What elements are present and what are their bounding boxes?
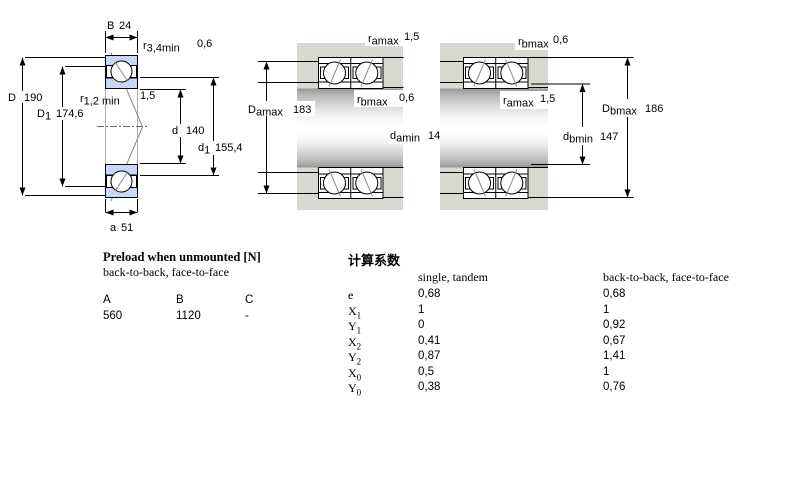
factors-row: Y1 0 0,92	[348, 319, 768, 335]
dim-B: B 24	[106, 20, 138, 53]
factor-value-btb: 1	[603, 366, 763, 378]
dim-value-ramax-right: 1,5	[540, 93, 555, 105]
factor-value-single: 0,41	[418, 335, 603, 347]
dim-label-a: a	[110, 222, 117, 234]
dim-label-ramax-mid: ramax	[368, 33, 399, 48]
dim-label-ramax-right: ramax	[503, 95, 534, 110]
factors-title: 计算系数	[348, 250, 400, 269]
dim-value-ramax-mid: 1,5	[404, 31, 419, 43]
dim-ramax-right: ramax 1,5	[500, 91, 560, 110]
dim-value-r34: 0,6	[197, 38, 212, 50]
dim-value-B: 24	[119, 20, 131, 32]
factors-row: Y0 0,38 0,76	[348, 381, 768, 397]
dim-a: a 51	[106, 199, 138, 234]
factor-value-single: 0,68	[418, 288, 603, 300]
preload-col-A: A	[103, 294, 176, 306]
bearing-section-top	[106, 56, 138, 89]
dim-label-d: d	[172, 125, 178, 137]
factors-col2-header: back-to-back, face-to-face	[603, 270, 729, 285]
factor-label: Y2	[348, 350, 418, 365]
factor-value-btb: 0,76	[603, 381, 763, 393]
dim-value-a: 51	[121, 222, 133, 234]
dim-D1: D1 174,6	[35, 67, 105, 187]
dim-value-D: 190	[24, 92, 42, 104]
factor-value-btb: 1	[603, 304, 763, 316]
dim-value-r12: 1,5	[140, 90, 155, 102]
dim-label-B: B	[107, 20, 114, 32]
dim-label-rbmax-mid: rbmax	[357, 94, 388, 109]
dim-r12: r1,2 min 1,5	[80, 90, 155, 108]
factor-value-btb: 0,92	[603, 319, 763, 331]
dim-label-D: D	[8, 92, 16, 104]
bearing-pair-top	[464, 58, 529, 89]
bearing-pair-bottom	[319, 168, 384, 199]
factor-value-single: 1	[418, 304, 603, 316]
bearing-pair-bottom	[464, 168, 529, 199]
dim-label-Damax: Damax	[248, 104, 283, 119]
preload-value-row: 560 1120 -	[103, 310, 305, 322]
dim-D: D 190	[6, 58, 105, 196]
ball	[501, 172, 523, 194]
factor-label: X0	[348, 366, 418, 381]
factors-row: e 0,68 0,68	[348, 288, 768, 304]
single-bearing-diagram: B 24 D 190 D1 174,6	[6, 20, 250, 234]
preload-table: A B C 560 1120 -	[103, 294, 305, 322]
dim-value-d1: 155,4	[215, 142, 243, 154]
factors-row: X0 0,5 1	[348, 366, 768, 382]
factor-label: e	[348, 288, 418, 303]
dim-value-Dbmax: 186	[645, 103, 663, 115]
mounted-pair-diagram-b: Dbmax 186 dbmin 147 rbmax 0,6 ramax	[440, 32, 666, 210]
dim-ramax-mid: ramax 1,5	[365, 29, 422, 48]
factors-table: e 0,68 0,68 X1 1 1 Y1 0 0,92 X2 0,41 0,6…	[348, 288, 768, 397]
bearing-datasheet-page: B 24 D 190 D1 174,6	[0, 0, 800, 500]
factor-label: Y1	[348, 319, 418, 334]
dim-label-rbmax-right: rbmax	[518, 36, 549, 51]
dim-r34: r3,4min 0,6	[143, 38, 212, 55]
bearing-technical-drawing: B 24 D 190 D1 174,6	[0, 0, 800, 245]
factor-value-single: 0,87	[418, 350, 603, 362]
factor-label: Y0	[348, 381, 418, 396]
dim-rbmax-right: rbmax 0,6	[515, 32, 575, 51]
preload-value-A: 560	[103, 310, 176, 322]
preload-subtitle: back-to-back, face-to-face	[103, 265, 229, 280]
preload-header-row: A B C	[103, 294, 305, 306]
factor-value-single: 0,5	[418, 366, 603, 378]
mounted-pair-diagram-a: Damax 183 damin 147 ramax 1,5 rbmax	[246, 29, 470, 210]
dim-value-dbmin: 147	[600, 131, 618, 143]
dim-rbmax-mid: rbmax 0,6	[354, 90, 418, 109]
bearing-pair-top	[319, 58, 384, 89]
preload-title: Preload when unmounted [N]	[103, 250, 261, 265]
ball	[501, 62, 523, 84]
dim-label-r34: r3,4min	[143, 40, 180, 55]
factor-value-btb: 0,68	[603, 288, 763, 300]
dim-value-rbmax-mid: 0,6	[399, 92, 414, 104]
preload-col-C: C	[245, 294, 305, 306]
dim-value-Damax: 183	[293, 104, 311, 116]
preload-value-B: 1120	[176, 310, 245, 322]
dim-value-D1: 174,6	[56, 108, 84, 120]
factor-value-single: 0	[418, 319, 603, 331]
factor-label: X2	[348, 335, 418, 350]
preload-col-B: B	[176, 294, 245, 306]
dim-value-rbmax-right: 0,6	[553, 34, 568, 46]
factors-col1-header: single, tandem	[418, 270, 488, 285]
factor-value-single: 0,38	[418, 381, 603, 393]
preload-value-C: -	[245, 310, 305, 322]
factors-row: Y2 0,87 1,41	[348, 350, 768, 366]
dim-value-d: 140	[186, 125, 204, 137]
dim-label-D1: D1	[37, 108, 51, 123]
dim-label-r12: r1,2 min	[80, 93, 120, 108]
bearing-section-bottom	[106, 165, 138, 198]
factors-row: X1 1 1	[348, 304, 768, 320]
factor-label: X1	[348, 304, 418, 319]
factor-value-btb: 0,67	[603, 335, 763, 347]
factor-value-btb: 1,41	[603, 350, 763, 362]
factors-row: X2 0,41 0,67	[348, 335, 768, 351]
